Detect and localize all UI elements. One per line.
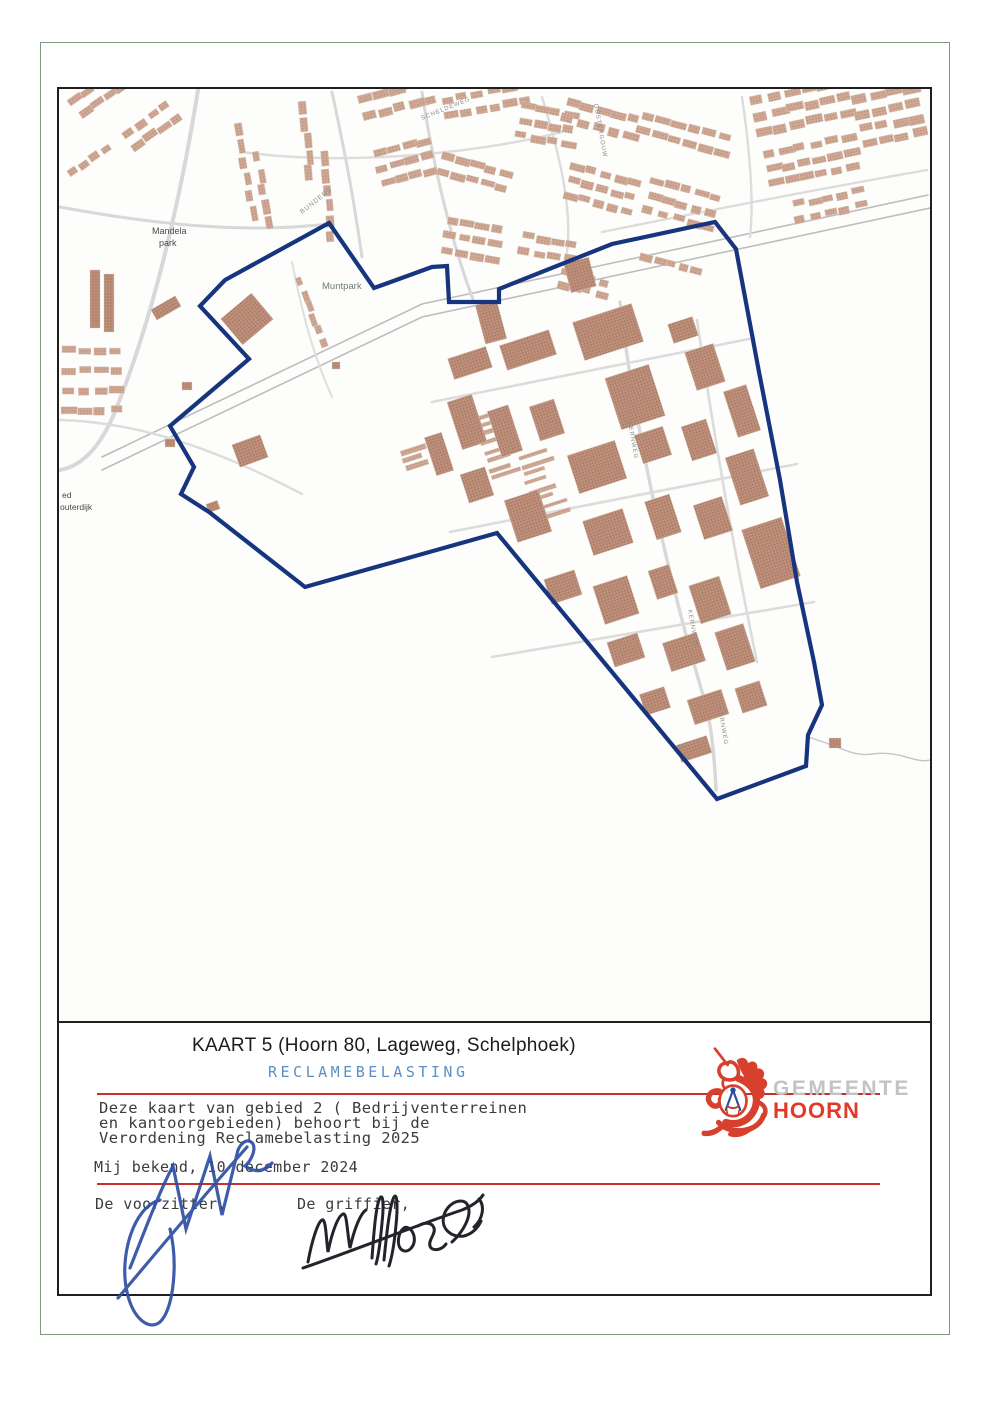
clerk-label: De griffier, xyxy=(297,1195,410,1213)
tax-subtitle: RECLAMEBELASTING xyxy=(268,1063,469,1081)
mandela-park-label: Mandela xyxy=(152,226,187,236)
mandela-park-label-2: park xyxy=(159,238,177,248)
attestation-line: Mij bekend, 10 december 2024 xyxy=(94,1158,358,1176)
map-canvas: Mandela park Muntpark BUNDERS SCHELDEWEG… xyxy=(59,89,930,1021)
map-title: KAART 5 (Hoorn 80, Lageweg, Schelphoek) xyxy=(192,1035,576,1057)
edge-label-1: ed xyxy=(62,490,72,500)
logo-text-hoorn: HOORN xyxy=(773,1098,860,1124)
edge-label-2: outerdijk xyxy=(60,502,93,512)
document-box: Mandela park Muntpark BUNDERS SCHELDEWEG… xyxy=(57,87,932,1296)
description-paragraph: Deze kaart van gebied 2 ( Bedrijventerre… xyxy=(99,1101,527,1146)
city-map: Mandela park Muntpark BUNDERS SCHELDEWEG… xyxy=(59,89,930,1021)
unicorn-emblem-icon xyxy=(697,1041,769,1141)
scanned-document-page: Mandela park Muntpark BUNDERS SCHELDEWEG… xyxy=(0,0,992,1402)
red-divider-bottom xyxy=(97,1183,880,1185)
gemeente-hoorn-logo: GEMEENTE HOORN xyxy=(697,1041,927,1151)
chairman-label: De voorzitter, xyxy=(95,1195,227,1213)
muntpark-label: Muntpark xyxy=(322,281,362,292)
legend-section: KAART 5 (Hoorn 80, Lageweg, Schelphoek) … xyxy=(59,1021,930,1294)
